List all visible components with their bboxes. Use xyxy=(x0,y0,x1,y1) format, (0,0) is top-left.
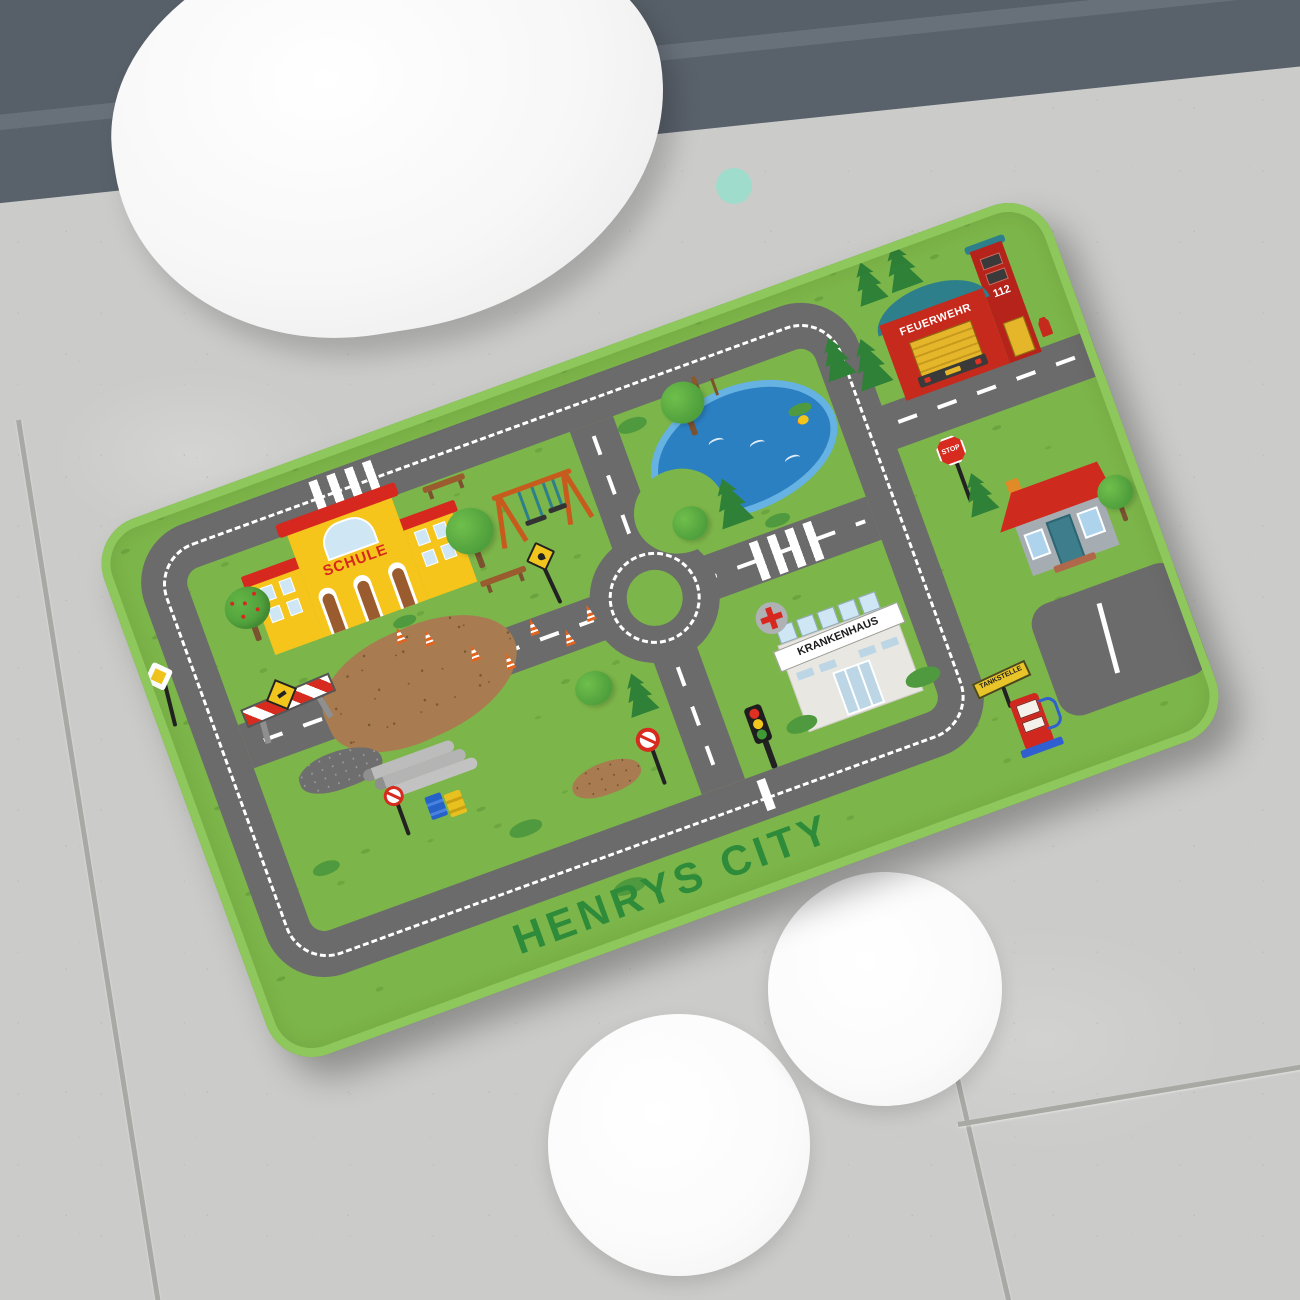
floor-dot xyxy=(716,168,752,204)
pouf xyxy=(548,1014,810,1276)
swing-chain xyxy=(542,483,554,508)
sign-post xyxy=(953,457,972,502)
room-scene: SCHULE 112 FEUERWEHR xyxy=(0,0,1300,1300)
sign-post xyxy=(163,683,178,727)
swing-chain xyxy=(517,491,530,520)
swing-chain xyxy=(551,479,563,504)
swing-chain xyxy=(531,487,544,516)
pouf xyxy=(768,872,1002,1106)
